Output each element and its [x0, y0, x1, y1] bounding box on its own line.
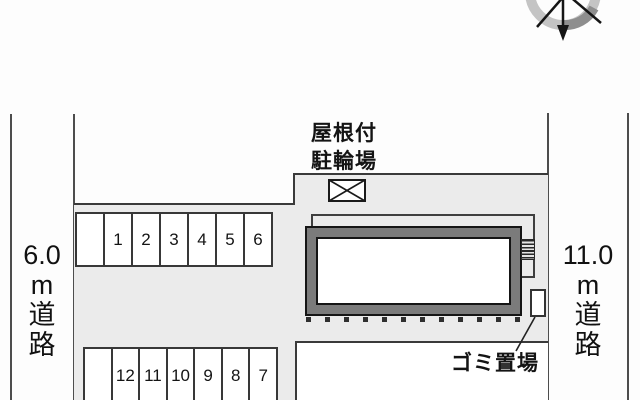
building-interior	[316, 237, 511, 305]
garbage-label: ゴミ置場	[451, 347, 539, 377]
bike-shed-label: 屋根付 駐輪場	[306, 120, 382, 176]
parking-stall-7: 7	[248, 347, 278, 400]
parking-stall-6: 6	[243, 212, 273, 267]
parking-stall-5: 5	[215, 212, 245, 267]
bike-shed-symbol-icon	[328, 179, 366, 202]
parking-stall	[75, 212, 105, 267]
road-label-left: 6.0 m 道 路	[10, 240, 74, 360]
stairs-icon	[521, 239, 535, 260]
road-right-unit: m	[577, 270, 600, 300]
bike-shed-label-line1: 屋根付	[306, 120, 382, 148]
site-boundary-notch	[293, 173, 295, 205]
parking-stall-10: 10	[166, 347, 196, 400]
parking-stall-11: 11	[138, 347, 168, 400]
road-right-kanji-1: 道	[575, 300, 602, 330]
building-foundation-ticks	[306, 317, 521, 322]
parking-stall-2: 2	[131, 212, 161, 267]
road-left-unit: m	[31, 270, 54, 300]
road-label-right: 11.0 m 道 路	[548, 240, 628, 360]
road-left-kanji-1: 道	[29, 300, 56, 330]
parking-stall-12: 12	[111, 347, 141, 400]
parking-stall-1: 1	[103, 212, 133, 267]
site-plan-canvas: 屋根付 駐輪場 1 2 3 4 5 6 12 11 10 9 8 7 ゴミ置場 …	[0, 0, 640, 400]
parking-stall-4: 4	[187, 212, 217, 267]
parking-stall-3: 3	[159, 212, 189, 267]
parking-row-top: 1 2 3 4 5 6	[75, 212, 273, 267]
parking-stall-9: 9	[193, 347, 223, 400]
road-left-kanji-2: 路	[29, 330, 56, 360]
parking-stall-8: 8	[221, 347, 251, 400]
parking-stall	[83, 347, 113, 400]
road-right-width: 11.0	[563, 240, 614, 270]
road-left-width: 6.0	[23, 240, 61, 270]
road-right-kanji-2: 路	[575, 330, 602, 360]
bike-shed-label-line2: 駐輪場	[306, 148, 382, 176]
compass-icon	[525, 0, 610, 45]
parking-row-bottom: 12 11 10 9 8 7	[83, 347, 278, 400]
garbage-area-box	[530, 289, 546, 317]
